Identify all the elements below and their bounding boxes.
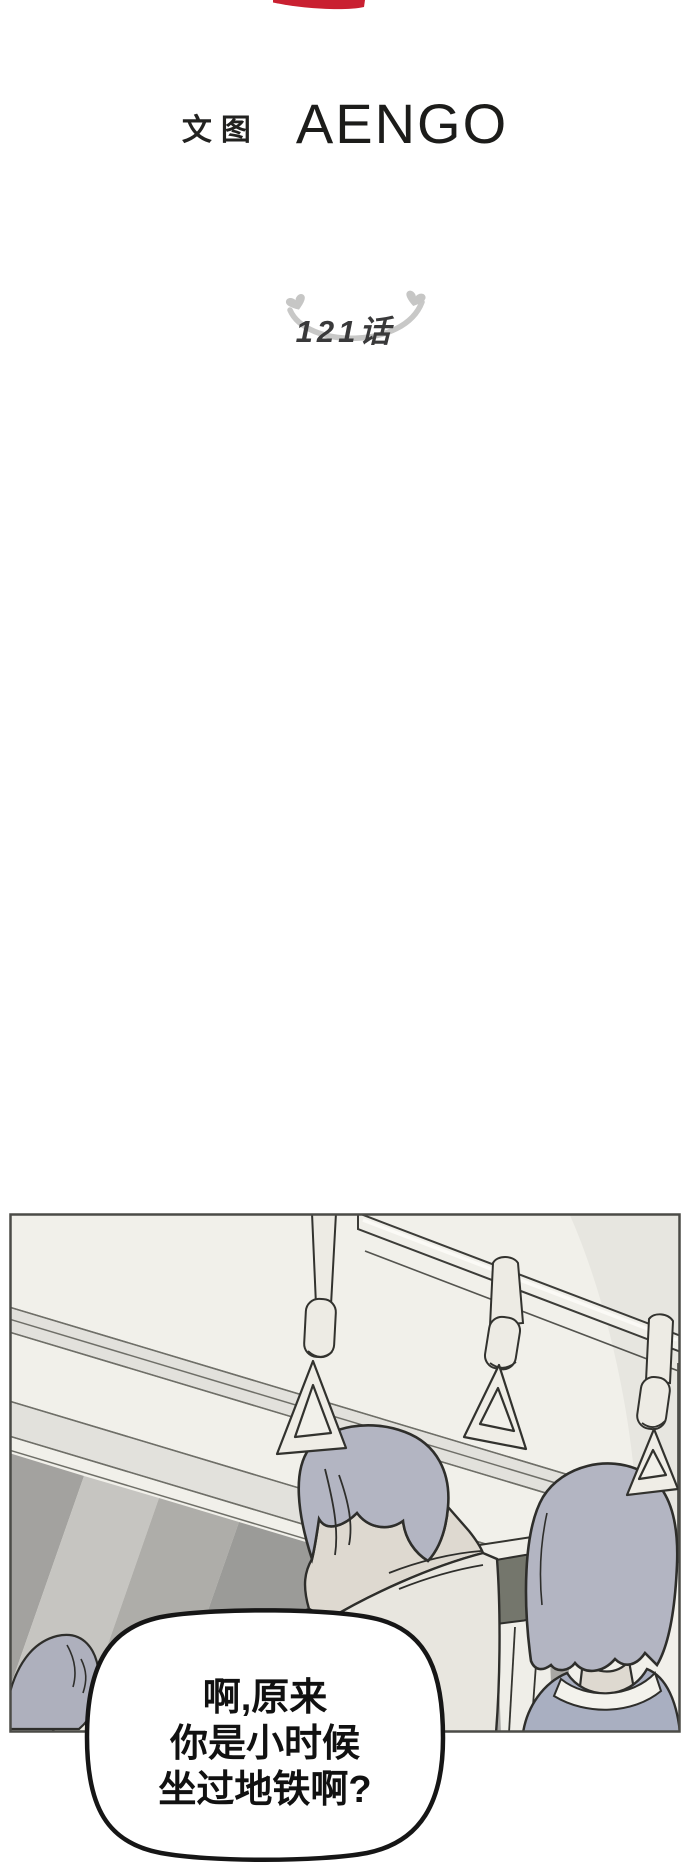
speech-bubble: 啊,原来 你是小时候 坐过地铁啊? (87, 1610, 443, 1859)
credit-row: 文图 AENGO (0, 96, 690, 152)
episode-header: 121话 (0, 286, 690, 366)
second-passenger (523, 1463, 680, 1733)
webtoon-page: 文图 AENGO 121话 (0, 0, 690, 1865)
second-passenger-hair (526, 1463, 677, 1670)
subway-illustration-panel: 啊,原来 你是小时候 坐过地铁啊? (9, 1213, 681, 1865)
brand-banner-icon (0, 0, 690, 16)
bubble-line: 你是小时候 (169, 1723, 360, 1765)
author-name: AENGO (296, 96, 508, 152)
episode-label: 121话 (0, 306, 690, 351)
credit-prefix: 文图 (182, 116, 260, 152)
bubble-line: 啊,原来 (203, 1677, 328, 1719)
bubble-line: 坐过地铁啊? (158, 1769, 371, 1811)
